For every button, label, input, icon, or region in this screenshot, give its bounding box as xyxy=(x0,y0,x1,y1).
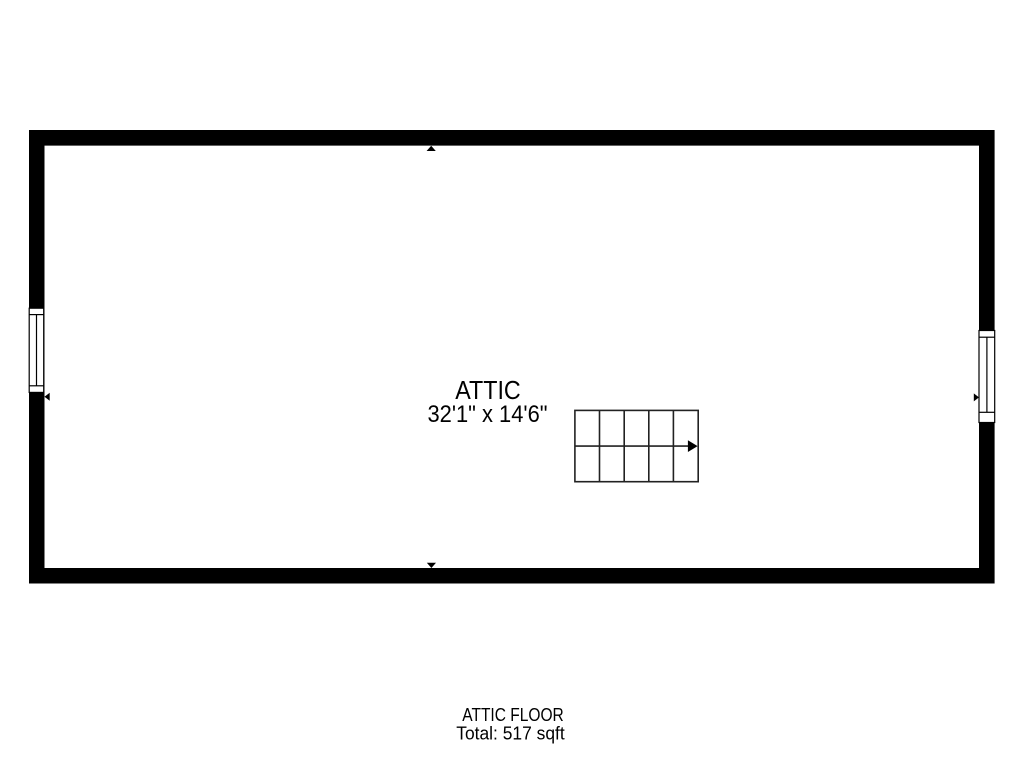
svg-text:32'1" x 14'6": 32'1" x 14'6" xyxy=(428,401,548,428)
svg-text:Total: 517 sqft: Total: 517 sqft xyxy=(456,724,565,744)
svg-text:ATTIC FLOOR: ATTIC FLOOR xyxy=(462,705,564,725)
